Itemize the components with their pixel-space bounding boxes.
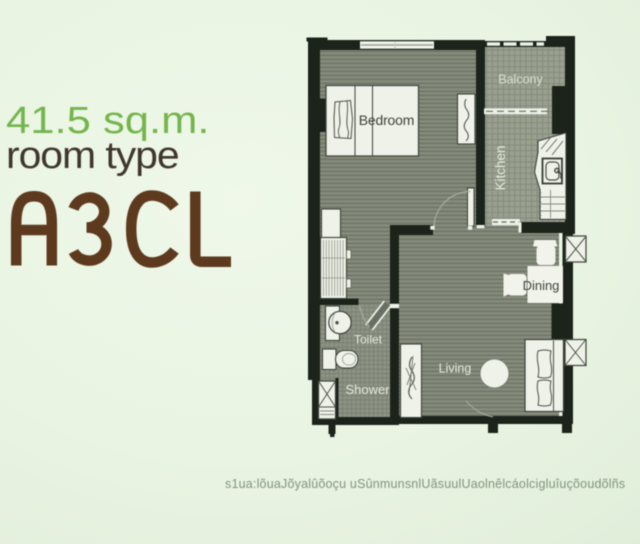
svg-text:Living: Living: [439, 362, 472, 376]
svg-text:Toilet: Toilet: [354, 333, 383, 347]
svg-text:Dining: Dining: [523, 278, 560, 293]
svg-text:Bedroom: Bedroom: [359, 112, 414, 128]
svg-text:Balcony: Balcony: [498, 73, 543, 87]
svg-text:Kitchen: Kitchen: [493, 145, 508, 190]
svg-text:Shower: Shower: [345, 382, 390, 397]
